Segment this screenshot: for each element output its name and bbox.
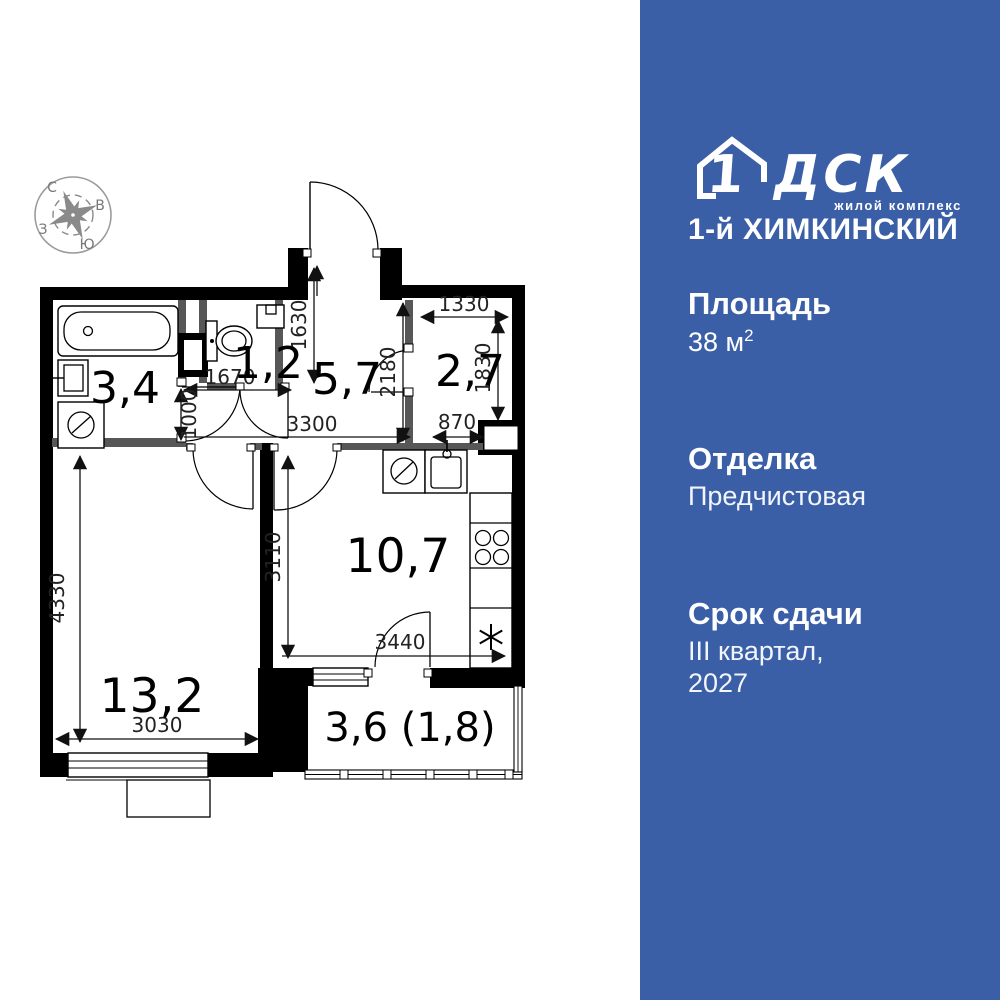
- area-label: Площадь: [688, 286, 831, 322]
- dim-1000: 1000: [177, 389, 201, 440]
- dim-1330: 1330: [439, 292, 490, 316]
- dim-3300: 3300: [287, 412, 338, 436]
- logo-number: 1: [705, 145, 745, 200]
- deadline-label: Срок сдачи: [688, 596, 863, 632]
- finish-label: Отделка: [688, 441, 816, 477]
- compass-west: З: [39, 222, 48, 238]
- room-label-bathroom: 3,4: [90, 363, 160, 414]
- deadline-year: 2027: [688, 668, 748, 699]
- compass-east: В: [95, 198, 105, 214]
- complex-name: 1-й ХИМКИНСКИЙ: [688, 213, 958, 247]
- wc-sink-icon: [257, 305, 284, 328]
- room-label-storage: 2,7: [435, 346, 505, 397]
- entry-door: [303, 182, 381, 257]
- compass-south: Ю: [79, 237, 94, 253]
- room-label-toilet: 1,2: [233, 338, 303, 389]
- info-panel: 1 ДСК жилой комплекс 1-й ХИМКИНСКИЙ Площ…: [640, 0, 1000, 1000]
- vent-shaft: [178, 333, 208, 377]
- compass-north: С: [47, 180, 57, 196]
- room-label-living: 13,2: [100, 669, 205, 724]
- kitchen-balcony-window: [313, 668, 368, 686]
- kitchen-appliance-icon: [383, 450, 425, 493]
- apartment-card: С В З Ю: [0, 0, 1000, 1000]
- area-value-number: 38 м: [688, 327, 744, 357]
- dim-870: 870: [438, 410, 476, 434]
- living-room-door: [187, 444, 255, 509]
- area-value: 38 м2: [688, 326, 754, 358]
- toilet-door: [236, 383, 289, 438]
- floor-plan: С В З Ю: [0, 0, 640, 1000]
- logo-brand: ДСК: [772, 145, 910, 200]
- living-room-window: [66, 753, 210, 780]
- room-label-balcony: 3,6 (1,8): [324, 705, 495, 751]
- compass-icon: С В З Ю: [35, 177, 111, 253]
- dim-3440: 3440: [375, 630, 426, 654]
- finish-value: Предчистовая: [688, 481, 866, 512]
- deadline-quarter: III квартал,: [688, 636, 824, 667]
- kitchen-door: [270, 444, 341, 510]
- bathroom-sink-icon: [50, 360, 88, 396]
- ac-basket: [127, 780, 210, 817]
- room-label-kitchen: 10,7: [346, 529, 451, 584]
- dim-3110: 3110: [261, 532, 285, 583]
- dsk-logo: 1 ДСК: [686, 136, 956, 200]
- bathtub-icon: [58, 306, 178, 356]
- wall-niche: [484, 426, 518, 450]
- room-label-hall: 5,7: [312, 354, 382, 405]
- floor-plan-area: С В З Ю: [0, 0, 640, 1000]
- logo-tagline: жилой комплекс: [688, 198, 962, 213]
- dim-4330: 4330: [45, 573, 69, 624]
- area-value-sup: 2: [744, 326, 753, 345]
